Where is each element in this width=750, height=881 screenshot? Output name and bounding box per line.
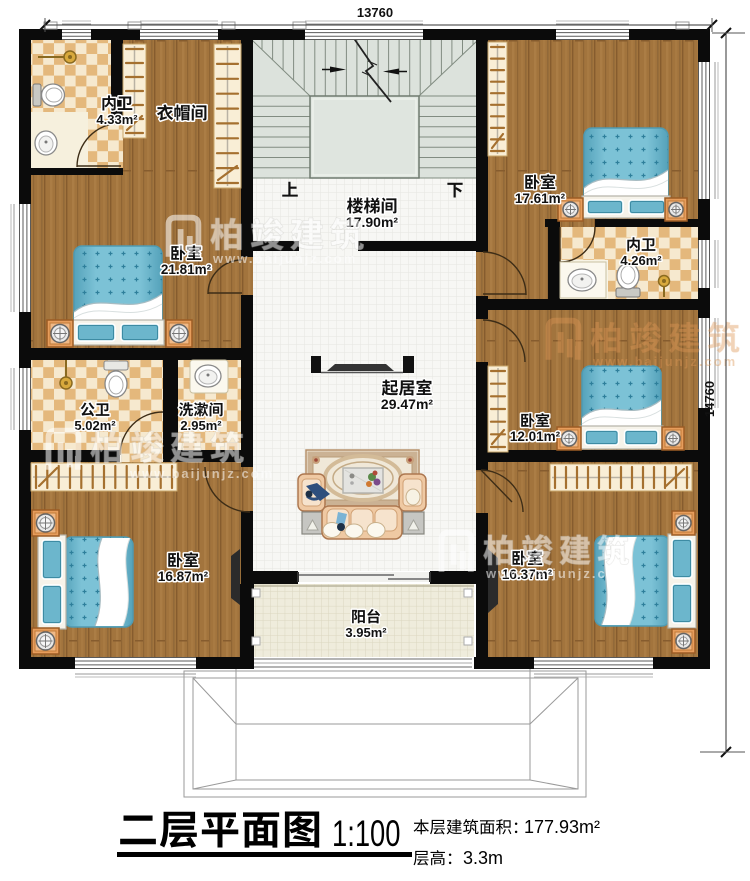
svg-text:www.baijunjz.com: www.baijunjz.com: [129, 466, 274, 481]
svg-text:4.26m²: 4.26m²: [620, 253, 662, 268]
svg-text:177.93m²: 177.93m²: [524, 817, 600, 837]
svg-text:16.87m²: 16.87m²: [158, 569, 209, 584]
svg-text:12.01m²: 12.01m²: [510, 429, 561, 444]
svg-text:1:100: 1:100: [332, 813, 400, 854]
svg-text:4.33m²: 4.33m²: [96, 112, 138, 127]
svg-text:14760: 14760: [702, 381, 717, 417]
svg-text:3.3m: 3.3m: [463, 848, 503, 868]
svg-text:www.baijunjz.com: www.baijunjz.com: [212, 251, 357, 266]
svg-text:21.81m²: 21.81m²: [161, 262, 212, 277]
svg-text:13760: 13760: [357, 5, 393, 20]
svg-text:17.61m²: 17.61m²: [515, 191, 566, 206]
svg-text:29.47m²: 29.47m²: [381, 396, 433, 412]
svg-text:www.baijunjz.com: www.baijunjz.com: [485, 566, 630, 581]
svg-text:3.95m²: 3.95m²: [345, 625, 387, 640]
svg-text:www.baijunjz.com: www.baijunjz.com: [592, 354, 737, 369]
